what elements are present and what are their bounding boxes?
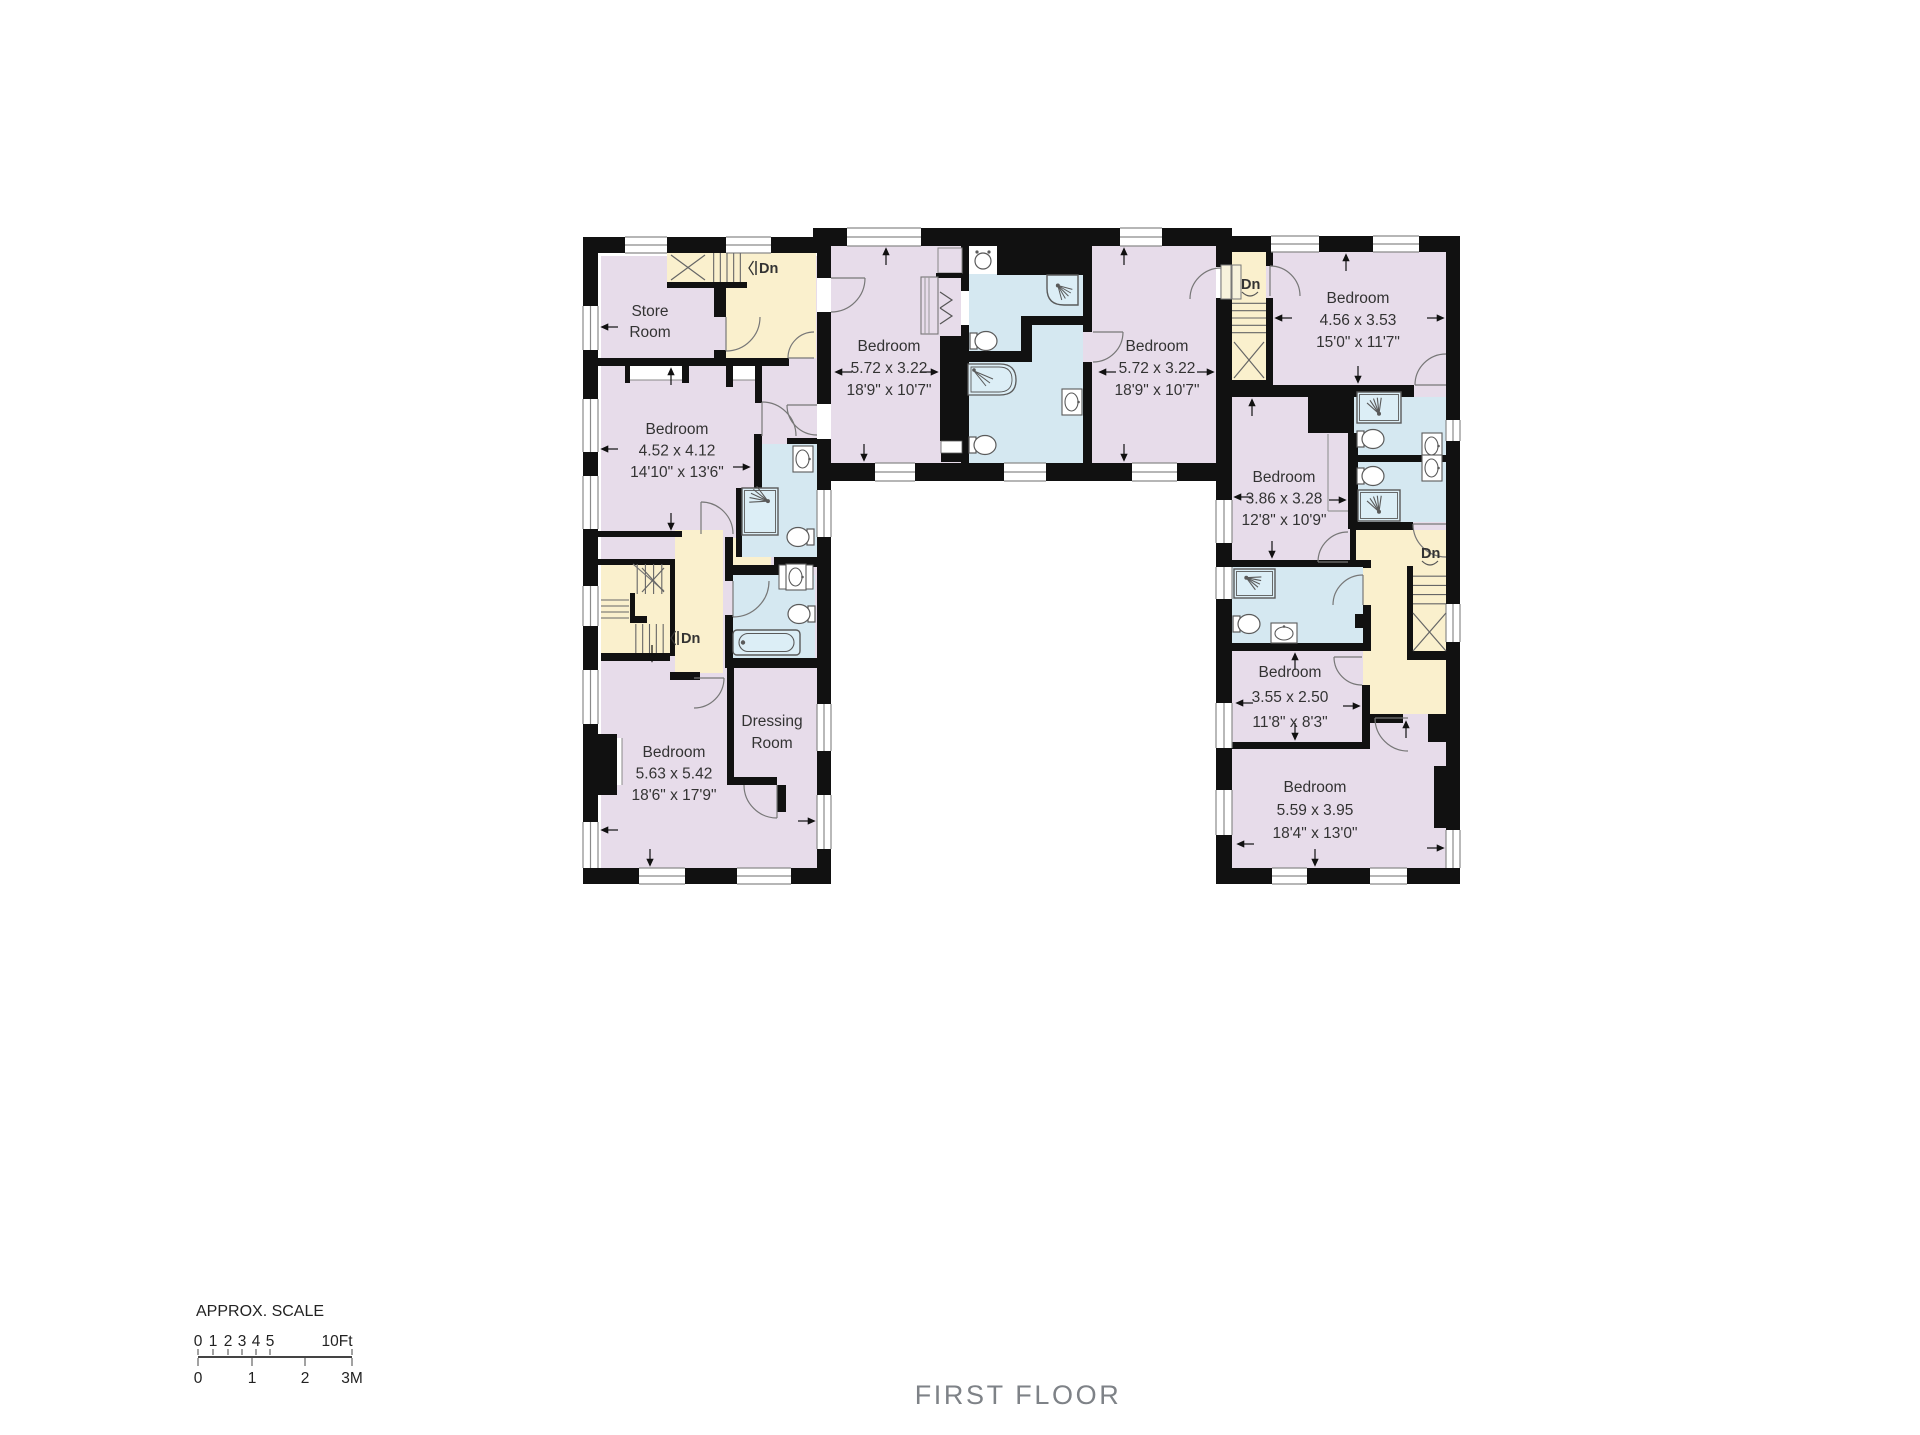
svg-text:3: 3	[238, 1333, 247, 1350]
svg-text:10Ft: 10Ft	[321, 1333, 353, 1350]
svg-text:5: 5	[266, 1333, 275, 1350]
svg-text:5.59 x 3.95: 5.59 x 3.95	[1277, 802, 1354, 819]
svg-text:Dn: Dn	[759, 261, 778, 277]
svg-text:5.72 x 3.22: 5.72 x 3.22	[1119, 360, 1196, 377]
svg-text:18'9" x 10'7": 18'9" x 10'7"	[1114, 382, 1199, 399]
svg-text:Dressing: Dressing	[741, 713, 802, 730]
svg-text:2: 2	[301, 1370, 310, 1387]
svg-text:1: 1	[248, 1370, 257, 1387]
svg-text:0: 0	[194, 1370, 203, 1387]
svg-text:Dn: Dn	[1241, 277, 1260, 293]
svg-text:12'8" x 10'9": 12'8" x 10'9"	[1241, 512, 1326, 529]
svg-text:3M: 3M	[341, 1370, 363, 1387]
svg-text:4.52 x 4.12: 4.52 x 4.12	[639, 443, 716, 460]
svg-text:18'9" x 10'7": 18'9" x 10'7"	[846, 382, 931, 399]
svg-text:Bedroom: Bedroom	[1126, 338, 1189, 355]
svg-text:Bedroom: Bedroom	[1327, 290, 1390, 307]
svg-text:APPROX. SCALE: APPROX. SCALE	[196, 1303, 324, 1320]
svg-text:Bedroom: Bedroom	[1284, 779, 1347, 796]
svg-text:Dn: Dn	[1421, 546, 1440, 562]
svg-text:Bedroom: Bedroom	[858, 338, 921, 355]
svg-text:Dn: Dn	[681, 631, 700, 647]
svg-text:FIRST FLOOR: FIRST FLOOR	[915, 1380, 1122, 1410]
svg-text:11'8" x 8'3": 11'8" x 8'3"	[1252, 714, 1327, 731]
svg-text:Room: Room	[629, 324, 670, 341]
svg-text:Bedroom: Bedroom	[1259, 664, 1322, 681]
svg-text:15'0" x 11'7": 15'0" x 11'7"	[1316, 334, 1400, 351]
svg-text:3.55 x 2.50: 3.55 x 2.50	[1252, 689, 1329, 706]
svg-text:5.72 x 3.22: 5.72 x 3.22	[851, 360, 928, 377]
svg-text:18'4" x 13'0": 18'4" x 13'0"	[1272, 825, 1357, 842]
svg-text:3.86 x 3.28: 3.86 x 3.28	[1246, 491, 1323, 508]
svg-text:5.63 x 5.42: 5.63 x 5.42	[636, 766, 713, 783]
svg-text:4: 4	[252, 1333, 261, 1350]
svg-text:Bedroom: Bedroom	[1253, 469, 1316, 486]
svg-text:Bedroom: Bedroom	[643, 744, 706, 761]
svg-text:Store: Store	[631, 303, 668, 320]
svg-text:4.56 x 3.53: 4.56 x 3.53	[1320, 312, 1397, 329]
svg-text:Bedroom: Bedroom	[646, 421, 709, 438]
svg-text:1: 1	[209, 1333, 218, 1350]
svg-text:18'6" x 17'9": 18'6" x 17'9"	[631, 787, 716, 804]
svg-text:Room: Room	[751, 735, 792, 752]
svg-text:2: 2	[224, 1333, 233, 1350]
svg-text:0: 0	[194, 1333, 203, 1350]
svg-text:14'10" x 13'6": 14'10" x 13'6"	[630, 464, 724, 481]
